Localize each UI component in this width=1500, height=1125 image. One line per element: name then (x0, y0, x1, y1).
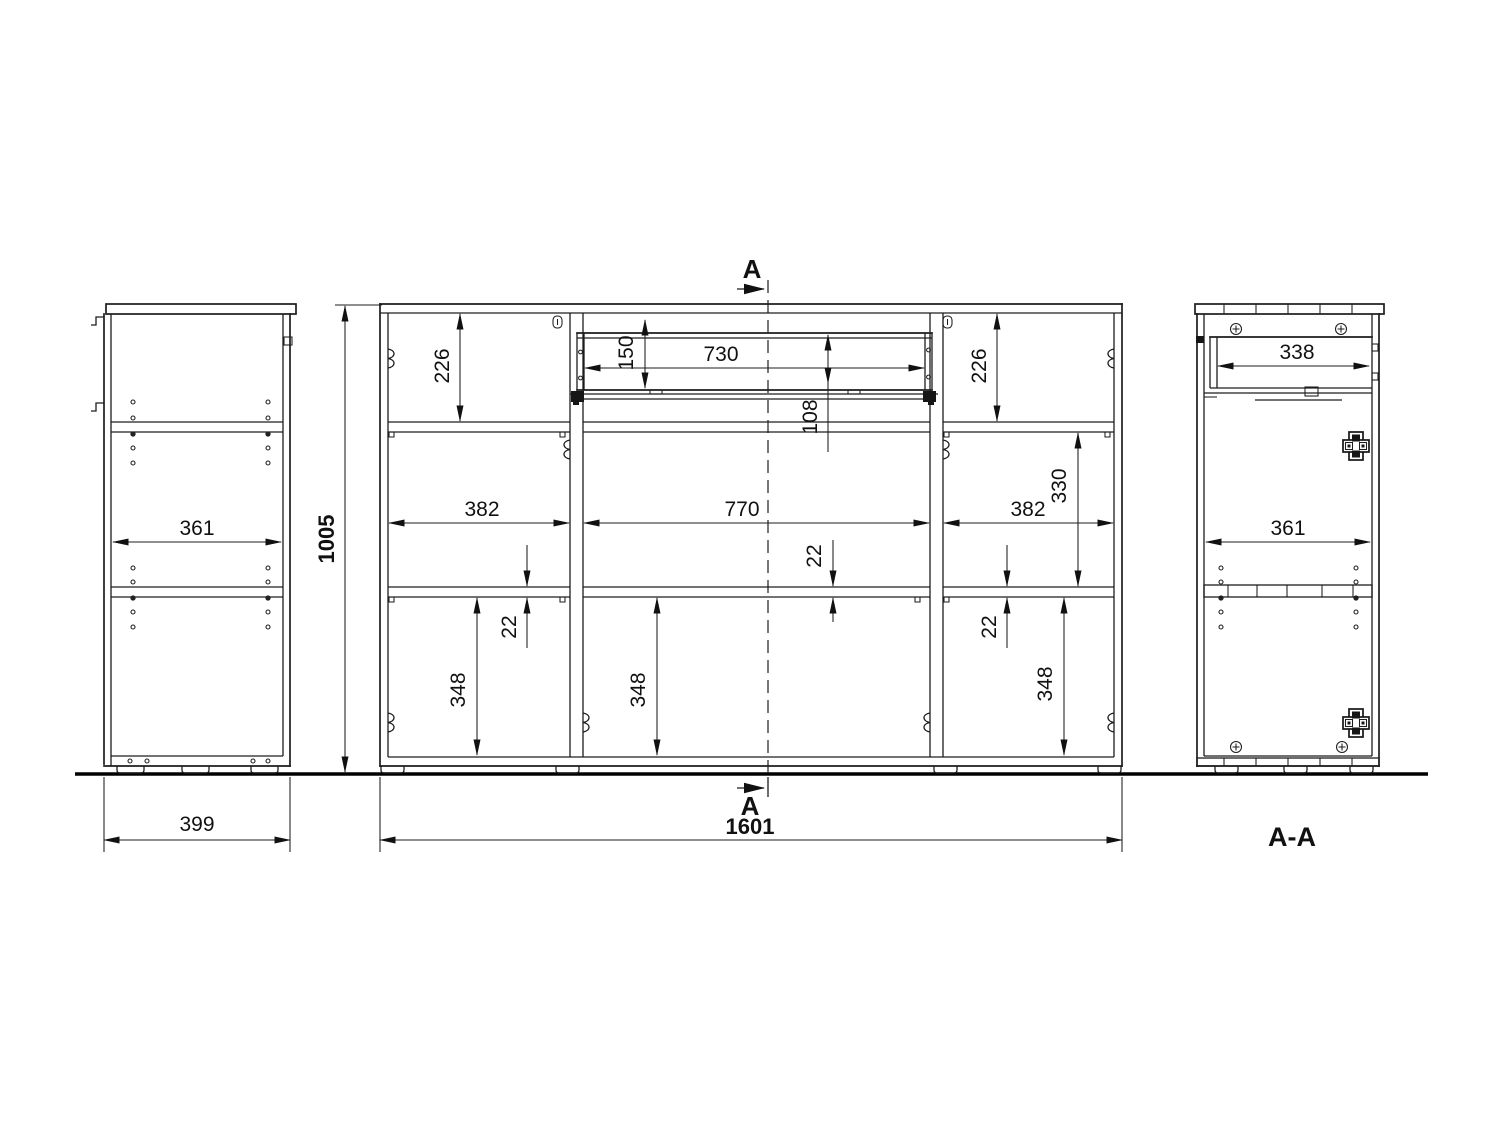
dim-label-top-left-cell: 226 (431, 348, 454, 383)
dim-label-left-cell-width: 382 (464, 498, 499, 521)
dim-side-depth: 399 (104, 777, 290, 852)
dim-label-side-inner-width: 361 (179, 517, 214, 540)
dim-label-section-inner-width: 361 (1270, 517, 1305, 540)
cam-lock-fittings (553, 316, 952, 328)
side-top-panel (106, 304, 296, 314)
dim-left-cell-width: 382 (389, 498, 569, 523)
dim-bottom-right-cell: 348 (1034, 598, 1064, 755)
side-feet (117, 766, 278, 773)
front-feet (381, 766, 1121, 773)
side-shelf-lower (111, 587, 283, 597)
side-shelf-pin-holes (128, 400, 270, 763)
dim-section-inner-width: 361 (1206, 517, 1370, 542)
section-view-title: A-A (1268, 822, 1316, 852)
dim-label-drawer-width: 730 (703, 343, 738, 366)
dim-label-side-depth: 399 (179, 813, 214, 836)
section-top-panel (1195, 304, 1384, 314)
drawing-canvas: 361 399 (0, 0, 1500, 1125)
furniture-technical-drawing: 361 399 (0, 0, 1500, 1125)
dim-bottom-mid-cell: 348 (627, 598, 657, 755)
section-cut-line: A A (737, 254, 768, 821)
dim-shelf-mid: 22 (803, 540, 833, 622)
dim-front-height: 1005 (314, 305, 382, 772)
dim-side-inner-width: 361 (113, 517, 281, 542)
hinge-plate-bottom (1343, 709, 1369, 737)
hinge-plate-top (1343, 432, 1369, 460)
dim-label-top-right-cell: 226 (968, 348, 991, 383)
dim-top-right-cell: 226 (968, 314, 997, 421)
side-view: 361 399 (91, 304, 296, 852)
front-view: A A 1005 226 226 150 730 108 (314, 254, 1122, 852)
dim-label-bottom-right-cell: 348 (1034, 666, 1057, 701)
dim-bottom-left-cell: 348 (447, 598, 477, 755)
side-shelf-upper (111, 422, 283, 432)
drawer-slide-right (923, 391, 936, 405)
front-carcass (380, 304, 1122, 766)
front-shelf-row-upper (388, 422, 1114, 437)
dim-label-mid-right-cell: 330 (1048, 468, 1071, 503)
wall-hooks (91, 317, 104, 411)
dim-label-bottom-left-cell: 348 (447, 672, 470, 707)
dim-label-right-cell-width: 382 (1010, 498, 1045, 521)
dim-label-front-height: 1005 (314, 515, 339, 564)
dim-label-bottom-mid-cell: 348 (627, 672, 650, 707)
dim-label-shelf-left: 22 (498, 615, 521, 638)
side-carcass (104, 314, 290, 766)
drawer-slide-left (571, 391, 584, 405)
dim-label-mid-cell-width: 770 (724, 498, 759, 521)
section-base (1197, 758, 1379, 773)
hinge-marks (388, 349, 1114, 732)
section-shelf (1204, 585, 1372, 597)
dim-label-shelf-right: 22 (978, 615, 1001, 638)
dim-right-cell-width: 382 (944, 498, 1113, 523)
dim-label-shelf-mid: 22 (803, 544, 826, 567)
dim-label-front-width: 1601 (726, 814, 775, 839)
dim-label-drawer-inner-height: 108 (799, 399, 822, 434)
dim-section-drawer-width: 338 (1218, 341, 1369, 366)
dim-mid-cell-width: 770 (584, 498, 929, 523)
section-carcass (1196, 314, 1379, 766)
section-fitting (1196, 336, 1204, 343)
section-label-top: A (743, 254, 762, 284)
dim-mid-right-cell: 330 (1048, 433, 1078, 586)
dim-drawer-front-height: 150 (615, 320, 645, 388)
dim-label-drawer-front-height: 150 (615, 335, 638, 370)
section-view: 338 361 (1195, 304, 1384, 852)
front-shelf-row-lower (388, 587, 1114, 602)
dim-top-left-cell: 226 (431, 314, 460, 421)
dim-label-section-drawer-width: 338 (1279, 341, 1314, 364)
